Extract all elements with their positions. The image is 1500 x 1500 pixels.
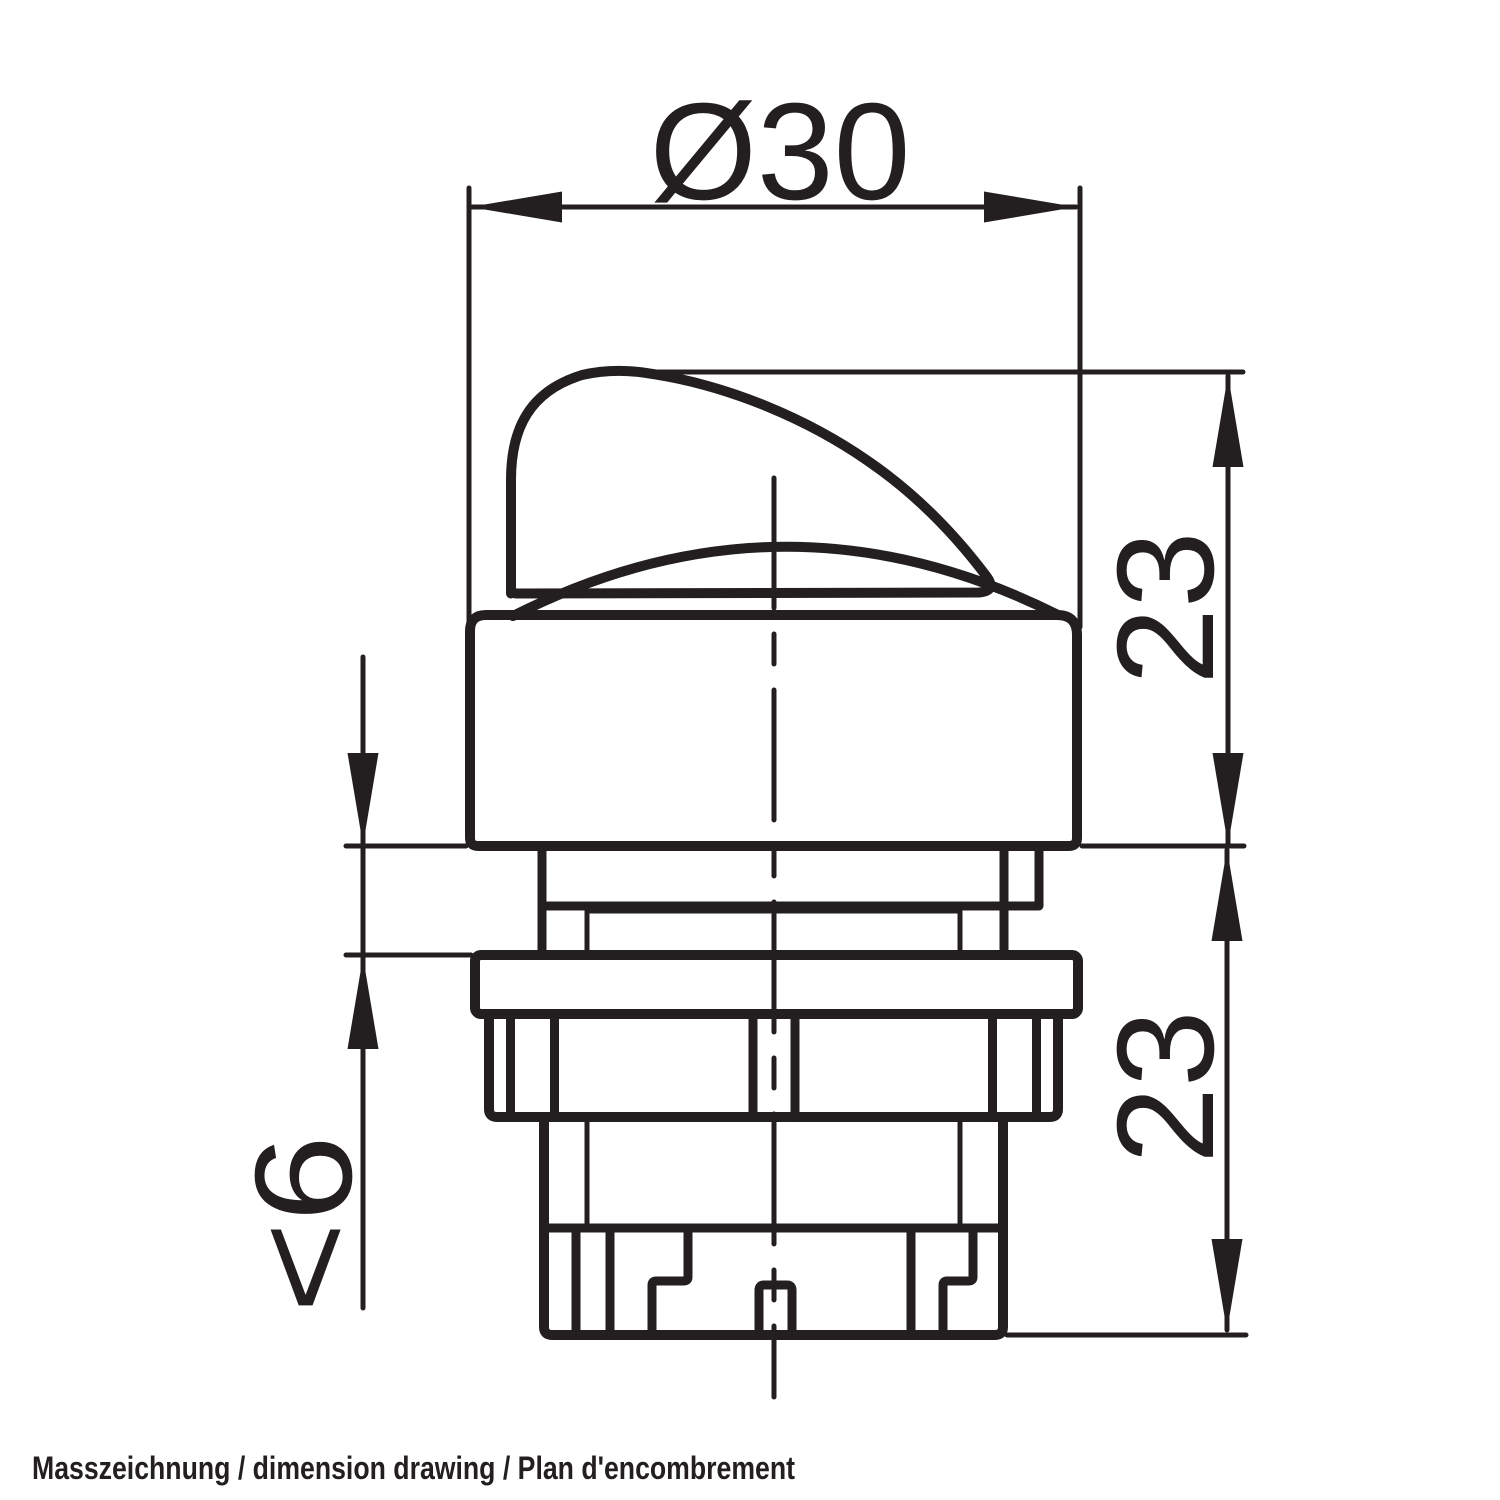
svg-text:Masszeichnung / dimension draw: Masszeichnung / dimension drawing / Plan… [32, 1450, 795, 1486]
svg-text:<6: <6 [227, 1135, 381, 1313]
svg-text:23: 23 [1089, 1010, 1243, 1164]
svg-text:23: 23 [1089, 531, 1243, 685]
